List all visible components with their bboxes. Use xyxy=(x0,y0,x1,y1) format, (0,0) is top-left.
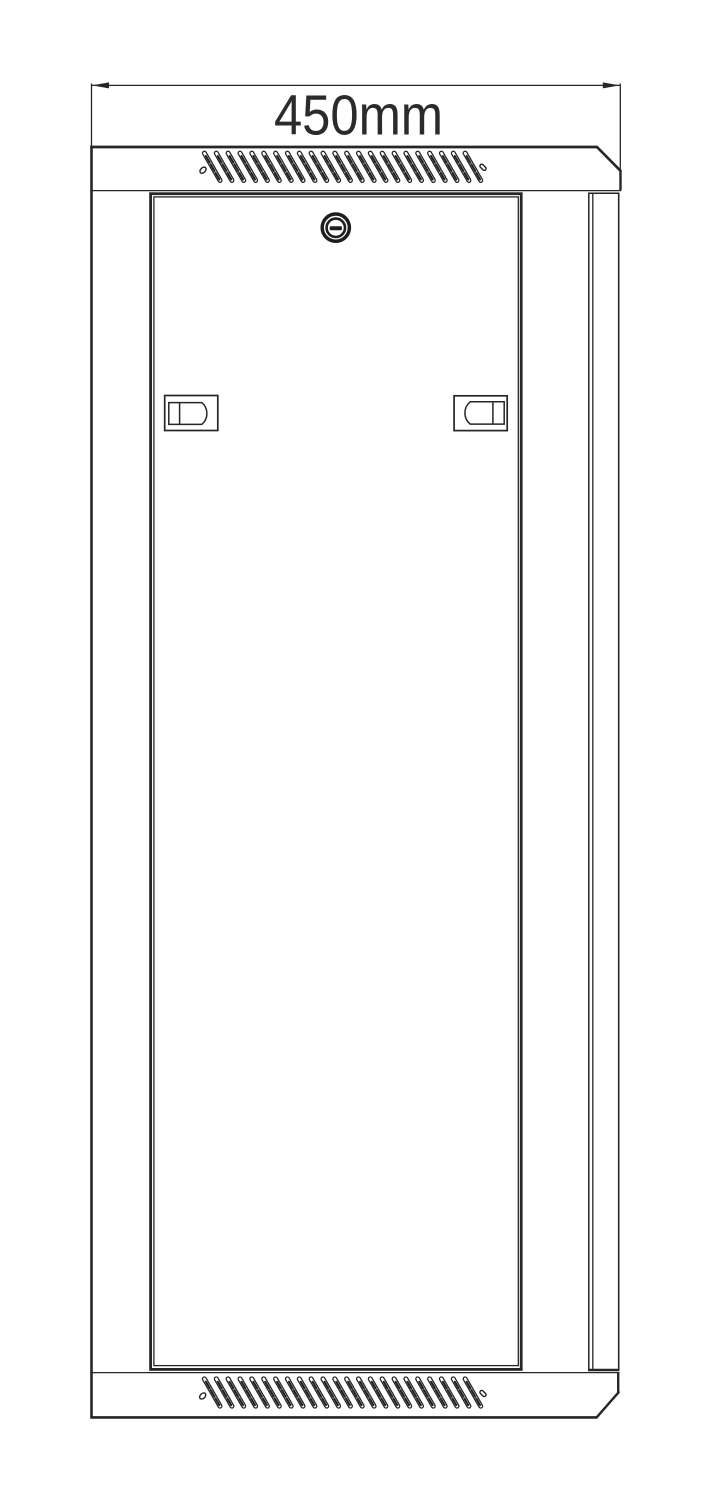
svg-text:450mm: 450mm xyxy=(274,84,443,147)
